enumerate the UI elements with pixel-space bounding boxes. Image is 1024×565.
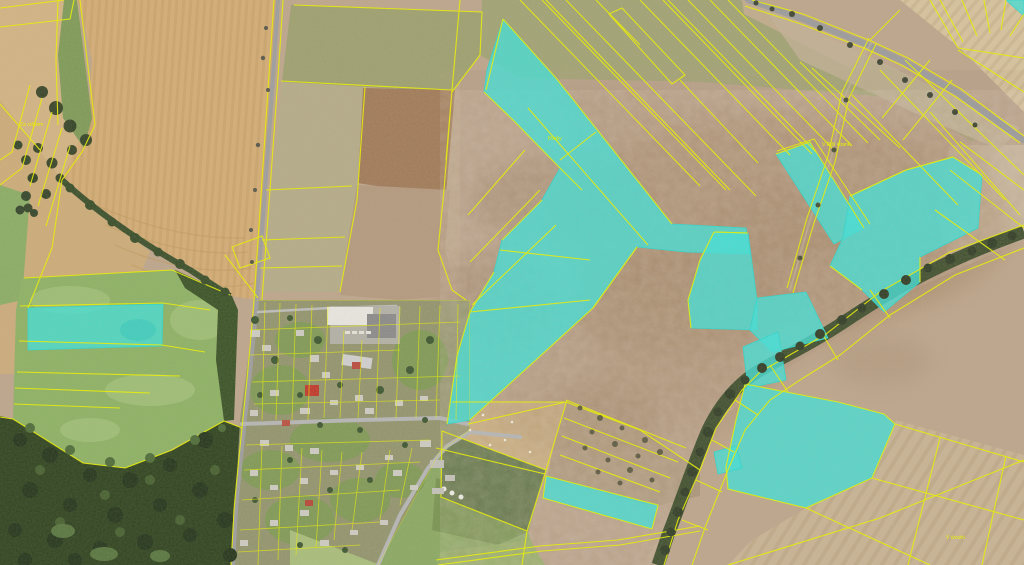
svg-text:Plotky: Plotky [548,136,562,142]
svg-text:Za vrškem: Za vrškem [20,122,43,128]
svg-text:V Dlší straně: V Dlší straně [822,142,851,148]
svg-text:V úvozki: V úvozki [946,535,965,541]
